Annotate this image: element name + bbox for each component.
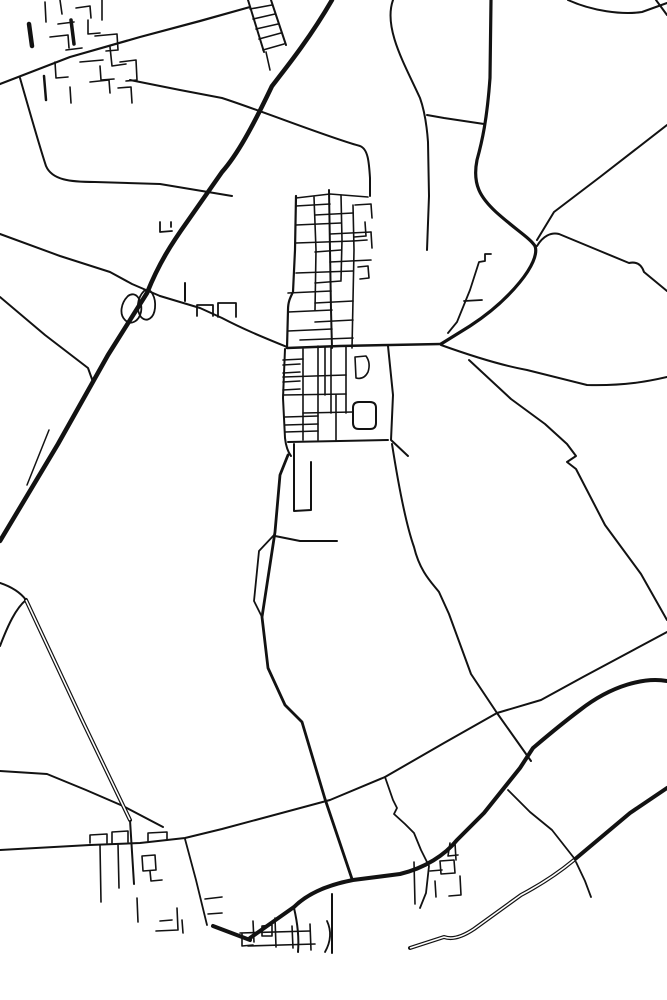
road-northeast-main-road [441,0,536,344]
road-village-comb-3 [283,381,300,382]
road-south-main-road [574,788,667,860]
road-nw-village-street-17 [118,87,132,103]
road-sw-village-v1 [100,845,101,902]
road-southeast-zigzag-road [469,360,667,620]
road-sw-village-hook [150,871,162,881]
road-south-main-road-cased-casing [410,860,574,948]
road-top-right-corner-stub [656,0,667,15]
road-sw-road-tail [130,820,134,884]
road-village-comb-5 [285,416,318,417]
road-village-rung-14 [288,329,332,331]
road-loop-street [294,444,311,511]
road-connector-between-thick-roads [508,790,574,858]
road-nw-village-street-4 [76,6,91,18]
road-nw-village-street-15 [90,80,110,93]
road-sw-village-v2 [118,844,119,888]
road-village-south-h4 [303,412,353,413]
road-village-comb-1 [283,364,300,365]
road-roadside-block-b [218,303,236,317]
road-long-southern-diagonal [0,632,667,850]
road-nw-village-bold-bar [29,24,32,46]
road-sw-village-frag-1 [182,920,183,933]
road-nw-village-street-3 [45,2,46,22]
road-nw-village-street-13 [55,62,68,78]
road-village-rung-1 [296,204,330,206]
road-village-rung-9 [315,281,341,283]
road-village-south-east-boundary [388,346,408,456]
road-southeast-thick-road [250,680,667,938]
map-viewport [0,0,667,1000]
road-village-ne-stub-3 [371,232,372,248]
road-sw-fork-lower [0,600,26,646]
road-sw-village-l-hook [156,908,178,931]
road-nw-interchange-approach [0,234,160,296]
road-sw-village-square [142,855,156,871]
road-village-rung-13 [315,320,353,322]
road-village-south-h1 [283,359,303,360]
road-ladder-south-stub [266,52,270,70]
road-village-comb-4 [283,389,300,390]
road-village-north-west-boundary [287,196,296,348]
road-north-approach-road [390,0,429,250]
road-ladder-rung-1 [250,5,272,9]
road-south-stub-past-main [576,862,591,897]
road-south-village-v1 [253,921,254,942]
road-village-comb-2 [283,372,300,373]
road-map-canvas [0,0,667,1000]
road-village-rung-7 [330,260,371,262]
road-nw-village-street-2 [60,0,62,14]
road-rounded-block [353,402,376,429]
road-south-main-road-cased [410,860,574,948]
road-ladder-rung-5 [263,44,284,50]
road-sw-village-bump-2 [112,831,128,843]
road-village-rung-3 [296,223,341,225]
road-se-village-hook-2 [449,876,461,896]
road-village-ne-stub-1 [355,204,372,218]
road-nw-village-street-16 [70,87,71,103]
road-top-right-curve [568,0,667,13]
road-northeast-diagonal [537,125,667,240]
road-south-village-v4 [310,924,311,950]
road-se-village-v1 [414,862,415,904]
road-village-ne-stub-2 [354,222,366,237]
road-village-rung-8 [296,271,353,273]
road-village-rung-11 [315,301,353,303]
road-rounded-block-small [355,356,369,378]
road-sw-village-v3 [137,898,138,922]
road-long-top-diagonal [0,7,250,84]
road-sw-fork-upper [0,583,26,600]
road-nw-village-street-14 [120,60,137,81]
road-village-north-east-street [352,205,354,348]
road-village-north-top-street [296,194,368,198]
road-se-village-square [440,860,455,874]
road-nw-village-street-12 [100,66,114,80]
road-nw-village-street-6 [88,20,100,34]
road-se-village-access [385,777,429,908]
road-nw-village-south-stub [44,76,46,100]
road-sw-village-stub-1 [205,897,222,899]
road-village-rung-6 [315,250,341,252]
road-nw-village-street-7 [50,35,69,48]
road-north-link-road [427,115,484,124]
road-nw-village-bold-bar-2 [71,20,74,44]
road-se-village-v2 [435,881,436,897]
road-east-stub-road [275,536,337,541]
road-village-ne-hook [358,266,369,279]
road-ne-step-road [448,254,491,333]
road-south-village-curve [325,921,330,952]
road-village-comb-6 [285,424,318,425]
road-village-south-h2 [283,375,346,377]
road-sw-village-stub-2 [208,913,222,914]
road-upper-field-road [130,80,370,196]
road-northwest-field-road [20,78,232,196]
road-sw-village-frag-2 [160,920,172,921]
road-village-north-inner-west [314,197,316,310]
road-village-ne-stub-4 [353,240,367,241]
road-village-rung-5 [296,241,353,243]
road-ladder-rung-2 [253,14,275,19]
road-ladder-rung-3 [256,24,278,29]
road-nw-village-street-11 [80,60,103,62]
road-village-rung-10 [288,291,331,293]
road-west-village-road-upper [0,771,163,827]
road-village-main-crossroad [287,344,441,348]
road-sw-village-diagonal-street [185,839,207,925]
road-ne-crossbar [464,300,482,301]
road-motorway [0,0,332,541]
road-ladder-rail-east [271,0,286,45]
road-south-village-h2 [248,944,315,946]
road-village-south-h5 [285,431,318,432]
road-mid-north-south-road [392,444,531,761]
road-west-field-road [0,297,93,382]
road-village-rung-4 [330,232,371,234]
road-village-rung-2 [315,213,353,215]
road-se-village-h1 [430,870,442,871]
road-sw-village-bump-1 [90,834,107,843]
road-east-bumpy-road [537,234,667,292]
road-village-north-inner-east [341,195,342,280]
road-village-rung-12 [288,310,332,312]
road-village-south-h3 [283,394,346,395]
road-south-village-h1 [240,931,310,933]
road-village-rung-15 [300,338,353,340]
road-ladder-rung-4 [259,33,281,39]
